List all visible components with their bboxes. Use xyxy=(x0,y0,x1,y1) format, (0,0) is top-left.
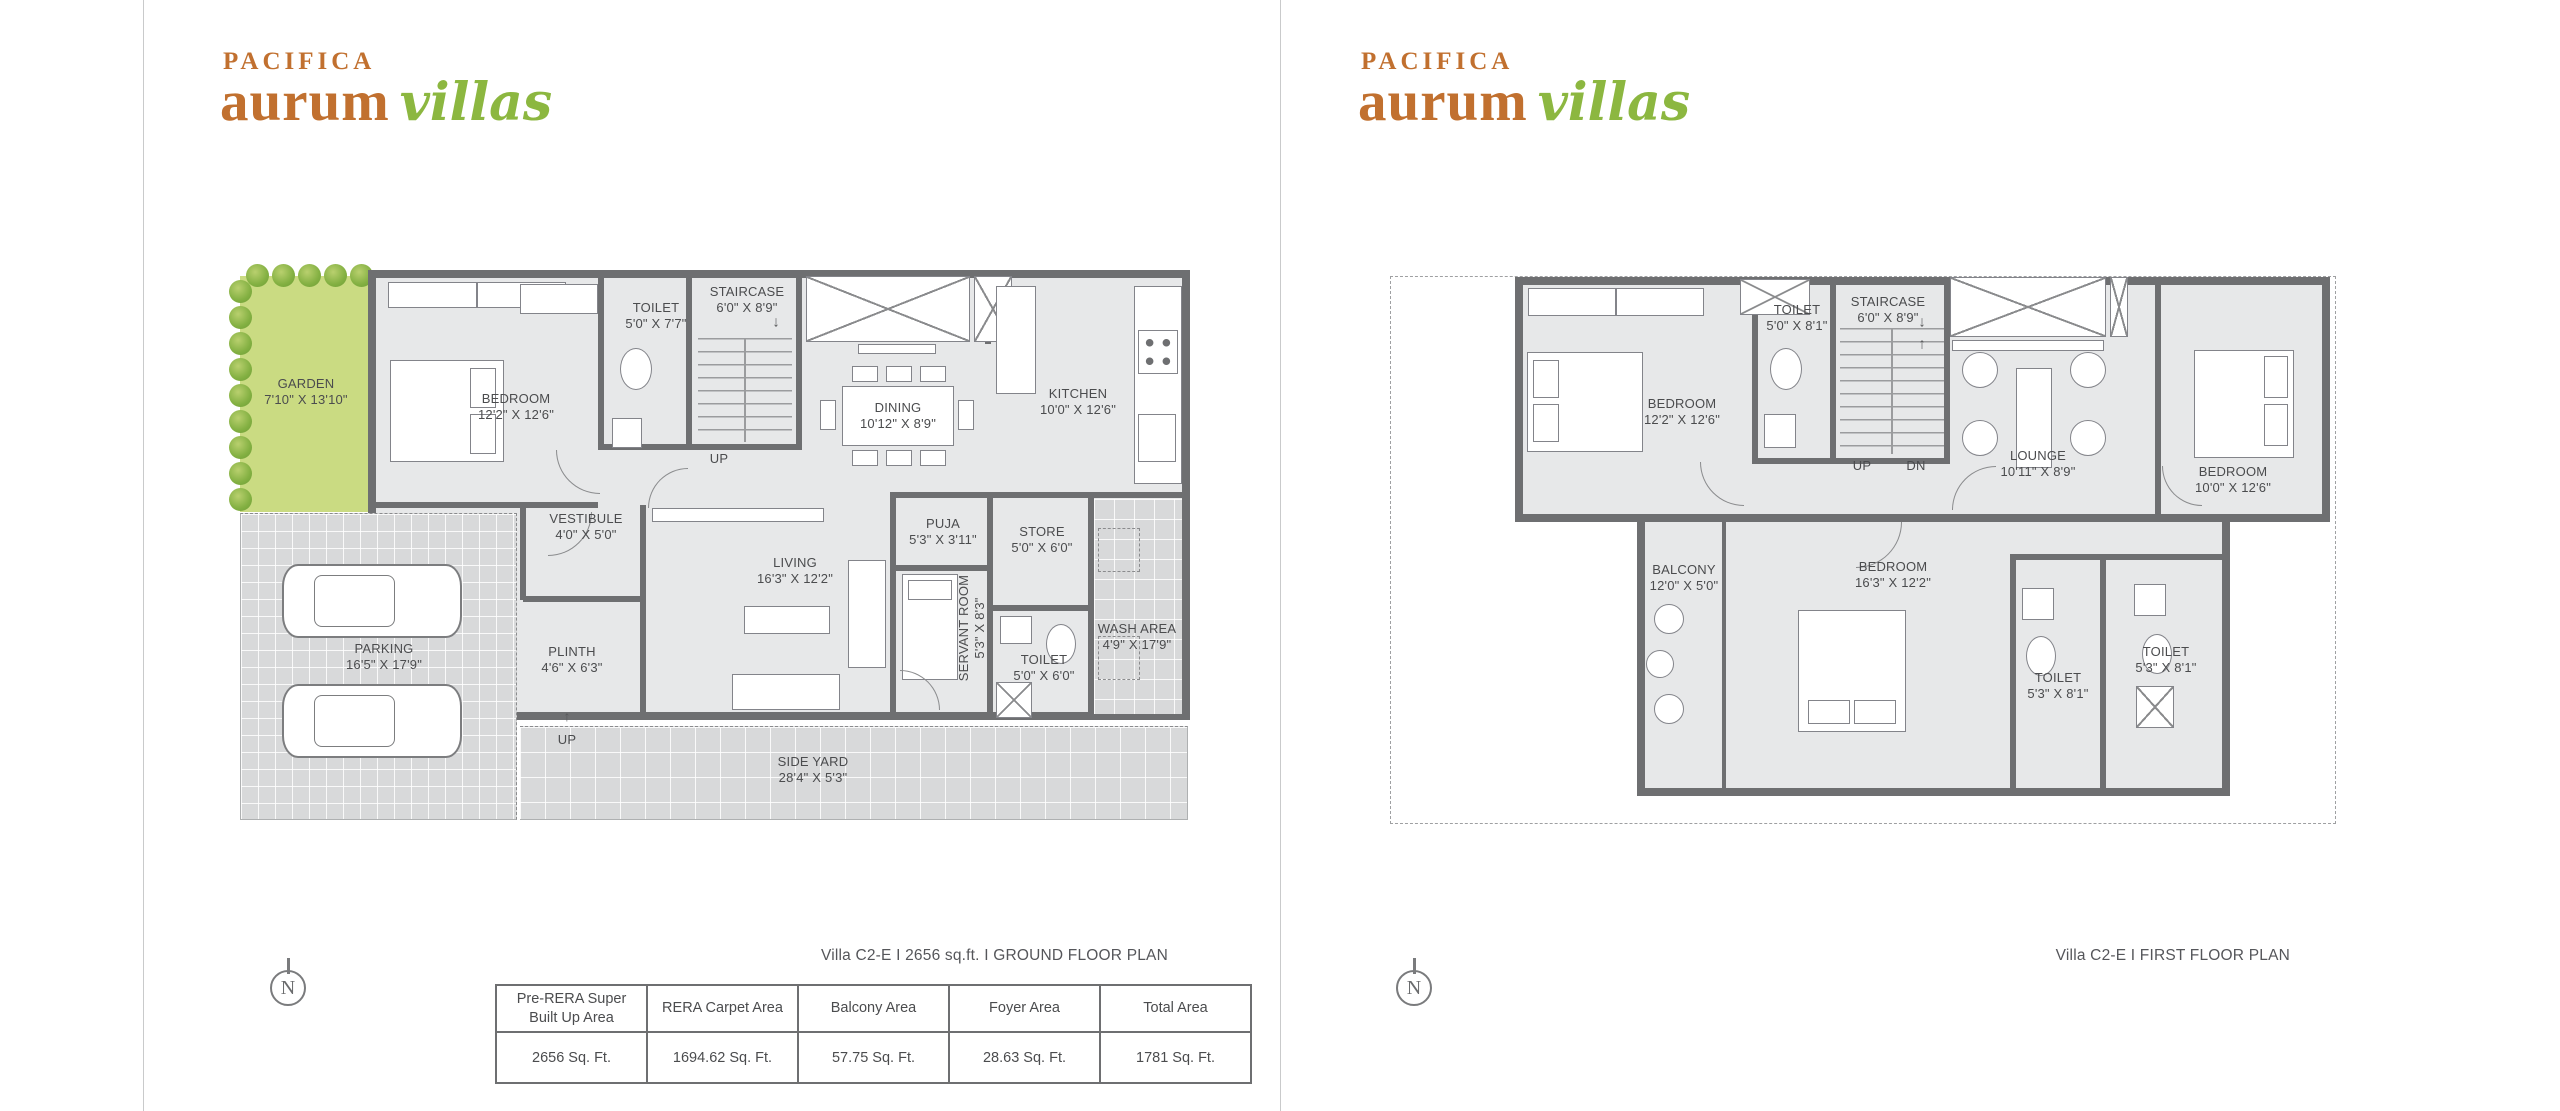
brand-villas: villas xyxy=(1538,72,1690,133)
wall-segment xyxy=(890,565,990,571)
lounge-chair xyxy=(1962,352,1998,388)
room-label-plinth: PLINTH 4'6" X 6'3" xyxy=(541,644,602,677)
wall-segment xyxy=(2010,560,2016,788)
area-table-value: 2656 Sq. Ft. xyxy=(496,1032,647,1083)
room-label-toilet-3: TOILET 5'0" X 8'1" xyxy=(1766,302,1827,335)
chair xyxy=(958,400,974,430)
brand-aurum: aurum xyxy=(1358,70,1528,133)
pillow xyxy=(1533,360,1559,398)
up-arrow-icon: ↑ xyxy=(564,708,571,724)
car-icon xyxy=(282,564,462,638)
wall-segment xyxy=(2010,554,2222,560)
utility-box xyxy=(1098,528,1140,572)
balcony-table xyxy=(1646,650,1674,678)
area-table-value: 57.75 Sq. Ft. xyxy=(798,1032,949,1083)
pillow xyxy=(1808,700,1850,724)
pillow xyxy=(1533,404,1559,442)
wall-segment xyxy=(890,498,896,712)
coffee-table xyxy=(744,606,830,634)
tree-icon xyxy=(298,264,321,287)
wc-icon xyxy=(620,348,652,390)
room-label-living: LIVING 16'3" X 12'2" xyxy=(757,555,833,588)
stair-rail xyxy=(744,338,746,442)
tree-icon xyxy=(229,332,252,355)
tv-console xyxy=(652,508,824,522)
room-label-toilet-4: TOILET 5'3" X 8'1" xyxy=(2027,670,2088,703)
room-label-dining: DINING 10'12" X 8'9" xyxy=(860,400,936,433)
north-label: N xyxy=(1407,977,1421,1000)
room-label-bedroom-3: BEDROOM 10'0" X 12'6" xyxy=(2195,464,2271,497)
brand-villas: villas xyxy=(400,72,552,133)
tree-icon xyxy=(229,436,252,459)
area-table-value-row: 2656 Sq. Ft. 1694.62 Sq. Ft. 57.75 Sq. F… xyxy=(496,1032,1251,1083)
room-label-wash-area: WASH AREA 4'9" X 17'9" xyxy=(1098,621,1177,654)
area-table: Pre-RERA Super Built Up Area RERA Carpet… xyxy=(495,984,1252,1084)
wall-segment xyxy=(890,492,1182,498)
stove-icon xyxy=(1138,330,1178,374)
washbasin-icon xyxy=(1764,414,1796,448)
console-shelf xyxy=(1952,340,2104,351)
washbasin-icon xyxy=(2134,584,2166,616)
washbasin-icon xyxy=(1000,616,1032,644)
wall-segment xyxy=(990,605,1090,611)
page-divider-middle xyxy=(1280,0,1281,1111)
stair-rail xyxy=(1891,328,1893,454)
shaft-icon xyxy=(2136,686,2174,728)
room-label-parking: PARKING 16'5" X 17'9" xyxy=(346,641,422,674)
room-label-kitchen: KITCHEN 10'0" X 12'6" xyxy=(1040,386,1116,419)
sofa xyxy=(732,674,840,710)
stair-up-label: UP xyxy=(710,451,728,467)
chair xyxy=(920,450,946,466)
room-label-store: STORE 5'0" X 6'0" xyxy=(1011,524,1072,557)
room-label-side-yard: SIDE YARD 28'4" X 5'3" xyxy=(778,754,849,787)
area-table-value: 28.63 Sq. Ft. xyxy=(949,1032,1100,1083)
north-indicator: N xyxy=(270,958,306,1014)
car-icon xyxy=(282,684,462,758)
chair xyxy=(852,366,878,382)
shaft-icon xyxy=(996,682,1032,718)
room-label-vestibule: VESTIBULE 4'0" X 5'0" xyxy=(549,511,622,544)
stair-dn-label: DN xyxy=(1906,458,1925,474)
lounge-chair xyxy=(1962,420,1998,456)
area-table-header: RERA Carpet Area xyxy=(647,985,798,1032)
room-label-lounge: LOUNGE 10'11" X 8'9" xyxy=(2000,448,2075,481)
washbasin-icon xyxy=(2022,588,2054,620)
floor-plan-sheet: PACIFICA aurumvillas xyxy=(0,0,2560,1111)
lounge-chair xyxy=(2070,352,2106,388)
room-label-toilet-5: TOILET 5'3" X 8'1" xyxy=(2135,644,2196,677)
up-arrow-icon: ↑ xyxy=(1918,336,1926,353)
room-label-balcony: BALCONY 12'0" X 5'0" xyxy=(1650,562,1719,595)
brand-logo: PACIFICA aurumvillas xyxy=(220,48,552,133)
tree-icon xyxy=(229,384,252,407)
stair-up-label: UP xyxy=(1853,458,1871,474)
wall-segment xyxy=(376,502,598,508)
wc-icon xyxy=(1770,348,1802,390)
wall-segment xyxy=(1830,285,1836,460)
pillow xyxy=(2264,404,2288,446)
wall-segment xyxy=(523,596,640,602)
wall-segment xyxy=(686,278,692,446)
ground-floor-caption: Villa C2-E I 2656 sq.ft. I GROUND FLOOR … xyxy=(820,947,1168,965)
sofa xyxy=(848,560,886,668)
room-label-bedroom-1: BEDROOM 12'2" X 12'6" xyxy=(478,391,554,424)
area-table-header-row: Pre-RERA Super Built Up Area RERA Carpet… xyxy=(496,985,1251,1032)
dresser xyxy=(520,284,598,314)
wall-segment xyxy=(1722,522,1726,788)
tree-icon xyxy=(229,306,252,329)
room-label-toilet-1: TOILET 5'0" X 7'7" xyxy=(625,300,686,333)
void-above-icon xyxy=(806,276,970,342)
chair xyxy=(886,450,912,466)
balcony-chair xyxy=(1654,694,1684,724)
room-label-bedroom-2: BEDROOM 12'2" X 12'6" xyxy=(1644,396,1720,429)
room-label-servant-room: SERVANT ROOM 5'3" X 8'3" xyxy=(956,575,989,681)
balcony-chair xyxy=(1654,604,1684,634)
room-label-staircase: STAIRCASE 6'0" X 8'9" xyxy=(710,284,785,317)
down-arrow-icon: ↓ xyxy=(1918,314,1926,331)
tree-icon xyxy=(324,264,347,287)
tree-icon xyxy=(229,410,252,433)
wall-segment xyxy=(2155,285,2161,515)
chair xyxy=(852,450,878,466)
pillow xyxy=(2264,356,2288,398)
washbasin-icon xyxy=(612,418,642,448)
chair xyxy=(886,366,912,382)
wall-segment xyxy=(520,505,526,600)
room-label-garden: GARDEN 7'10" X 13'10" xyxy=(264,376,348,409)
area-table-header: Pre-RERA Super Built Up Area xyxy=(496,985,647,1032)
north-indicator: N xyxy=(1396,958,1432,1014)
area-table-header: Balcony Area xyxy=(798,985,949,1032)
wardrobe xyxy=(1528,288,1704,316)
area-table-header: Foyer Area xyxy=(949,985,1100,1032)
north-label: N xyxy=(281,977,295,1000)
room-label-staircase-2: STAIRCASE 6'0" X 8'9" xyxy=(1851,294,1926,327)
wall-segment xyxy=(1088,498,1094,712)
room-label-toilet-2: TOILET 5'0" X 6'0" xyxy=(1013,652,1074,685)
tree-icon xyxy=(229,358,252,381)
kitchen-sink-icon xyxy=(1138,414,1176,462)
pillow xyxy=(1854,700,1896,724)
first-floor-caption: Villa C2-E I FIRST FLOOR PLAN xyxy=(2000,947,2290,965)
down-arrow-icon: ↓ xyxy=(772,314,780,331)
wall-segment xyxy=(640,505,646,712)
pillow xyxy=(908,580,952,600)
area-table-value: 1694.62 Sq. Ft. xyxy=(647,1032,798,1083)
room-label-bedroom-4: BEDROOM 16'3" X 12'2" xyxy=(1855,559,1931,592)
chair xyxy=(920,366,946,382)
tree-icon xyxy=(229,488,252,511)
wall-segment xyxy=(796,278,802,446)
brand-aurum: aurum xyxy=(220,70,390,133)
brand-logo: PACIFICA aurumvillas xyxy=(1358,48,1690,133)
page-divider-left xyxy=(143,0,144,1111)
console-shelf xyxy=(858,344,936,354)
refrigerator xyxy=(996,286,1036,394)
area-table-value: 1781 Sq. Ft. xyxy=(1100,1032,1251,1083)
void-above-icon xyxy=(1950,277,2106,337)
wall-segment xyxy=(598,278,604,446)
area-table-header: Total Area xyxy=(1100,985,1251,1032)
tree-icon xyxy=(229,280,252,303)
tree-icon xyxy=(229,462,252,485)
void-above-icon xyxy=(2110,277,2128,337)
chair xyxy=(820,400,836,430)
tree-icon xyxy=(272,264,295,287)
wall-segment xyxy=(2100,560,2106,788)
room-label-puja: PUJA 5'3" X 3'11" xyxy=(909,516,977,549)
entry-up-label: UP xyxy=(558,732,576,748)
room-side-yard xyxy=(520,726,1188,820)
